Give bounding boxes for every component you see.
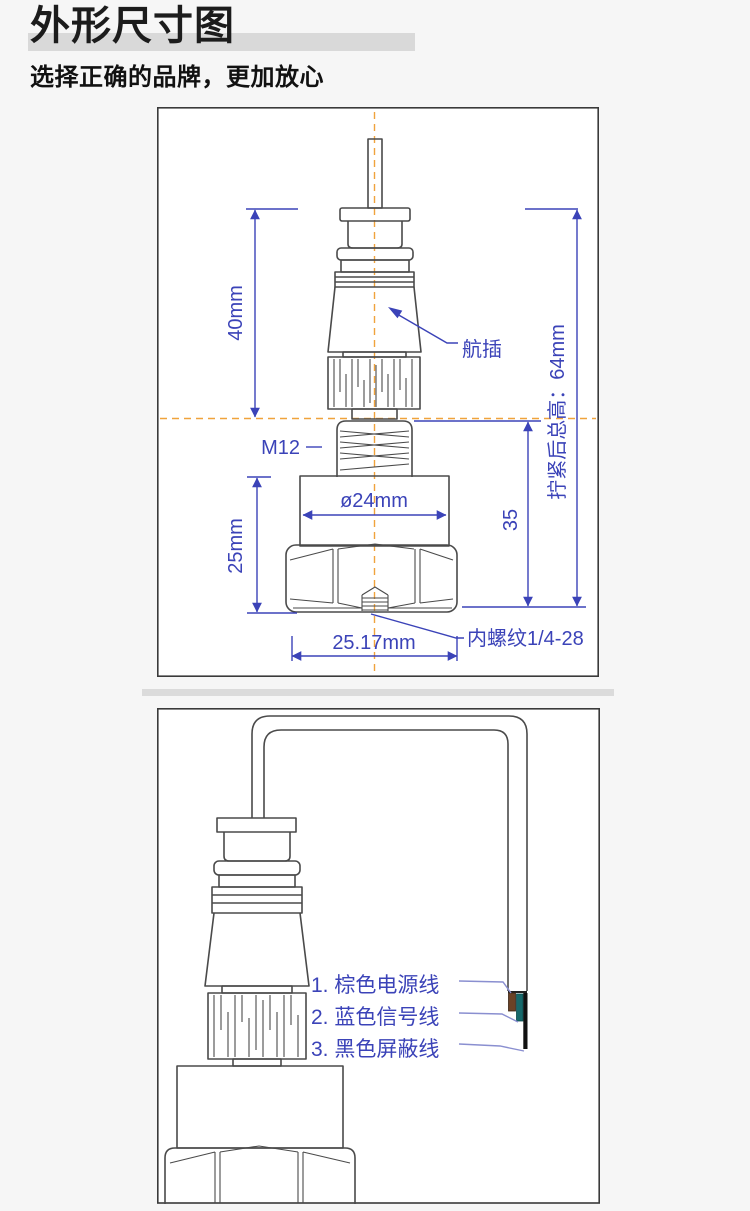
dim-25mm-text: 25mm xyxy=(225,518,247,574)
page-header: 外形尺寸图 选择正确的品牌，更加放心 xyxy=(0,0,750,100)
brown-wire-swatch xyxy=(509,993,516,1011)
wire-label-2: 2. 蓝色信号线 xyxy=(311,1006,439,1029)
wiring-diagram-panel: 1. 棕色电源线 2. 蓝色信号线 3. 黑色屏蔽线 xyxy=(157,708,600,1204)
internal-thread-text: 内螺纹1/4-28 xyxy=(467,627,584,650)
wire-label-3: 3. 黑色屏蔽线 xyxy=(311,1038,439,1061)
diagram-frame xyxy=(158,709,599,1203)
dim-40mm-text: 40mm xyxy=(225,285,247,341)
blue-wire-swatch xyxy=(517,994,524,1021)
dim-35-text: 35 xyxy=(500,509,522,531)
page-subtitle: 选择正确的品牌，更加放心 xyxy=(30,57,324,92)
dim-2517mm-text: 25.17mm xyxy=(332,632,415,654)
wire-label-1: 1. 棕色电源线 xyxy=(311,974,439,997)
dim-64mm-text: 拧紧后总高：64mm xyxy=(546,324,569,500)
aviation-plug-text: 航插 xyxy=(462,338,502,361)
m12-text: M12 xyxy=(261,437,300,459)
dimension-diagram-panel: 40mm 拧紧后总高：64mm 35 25mm ø24mm 25.17mm M1… xyxy=(157,107,599,677)
diagram-frame xyxy=(158,108,598,676)
page-title: 外形尺寸图 xyxy=(30,4,235,48)
wire-labels: 1. 棕色电源线 2. 蓝色信号线 3. 黑色屏蔽线 xyxy=(311,974,439,1061)
dim-o24mm-text: ø24mm xyxy=(340,490,408,512)
section-divider xyxy=(142,689,614,696)
black-wire-swatch xyxy=(523,993,527,1049)
